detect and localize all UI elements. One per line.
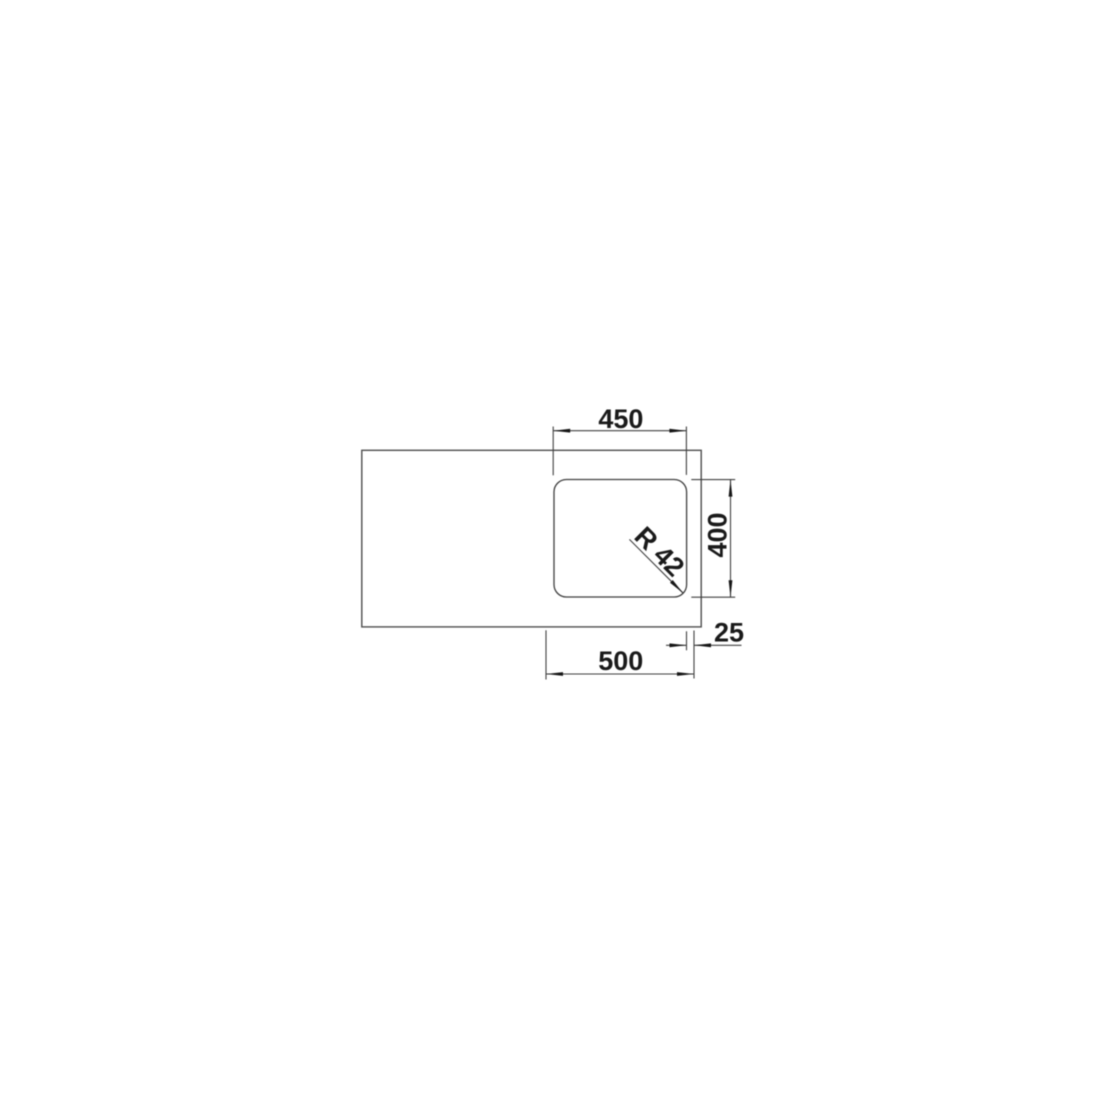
svg-text:400: 400: [702, 512, 732, 557]
svg-text:450: 450: [598, 404, 643, 434]
svg-text:500: 500: [598, 646, 643, 676]
svg-text:25: 25: [714, 618, 744, 648]
